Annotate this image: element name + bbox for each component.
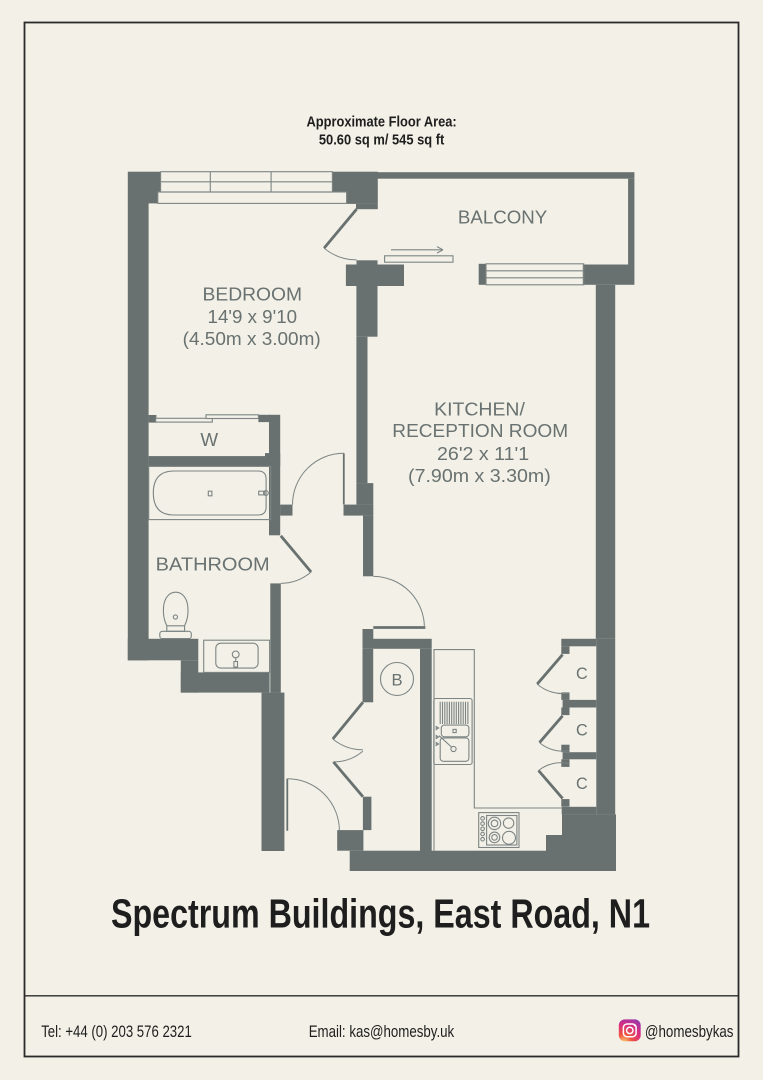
svg-text:Tel: +44 (0) 203 576 2321: Tel: +44 (0) 203 576 2321 [41,1023,192,1041]
svg-text:BALCONY: BALCONY [458,206,547,227]
svg-text:26'2 x 11'1: 26'2 x 11'1 [437,443,529,464]
svg-text:B: B [391,671,402,690]
svg-text:Spectrum Buildings, East Road,: Spectrum Buildings, East Road, N1 [111,891,650,937]
svg-text:Email: kas@homesby.uk: Email: kas@homesby.uk [309,1023,455,1041]
svg-text:@homesbykas: @homesbykas [645,1023,734,1041]
svg-text:14'9 x 9'10: 14'9 x 9'10 [208,306,298,327]
svg-text:(7.90m x 3.30m): (7.90m x 3.30m) [408,465,551,486]
svg-text:C: C [576,665,588,683]
svg-text:W: W [200,429,218,450]
svg-text:50.60 sq m/ 545 sq ft: 50.60 sq m/ 545 sq ft [319,133,444,149]
svg-text:BATHROOM: BATHROOM [156,553,270,574]
svg-text:(4.50m x 3.00m): (4.50m x 3.00m) [183,328,321,349]
svg-text:BEDROOM: BEDROOM [203,284,303,305]
svg-text:RECEPTION ROOM: RECEPTION ROOM [392,420,568,441]
svg-text:KITCHEN/: KITCHEN/ [434,398,526,419]
svg-text:C: C [576,722,588,740]
svg-text:C: C [576,775,588,793]
svg-text:Approximate Floor Area:: Approximate Floor Area: [307,115,457,131]
